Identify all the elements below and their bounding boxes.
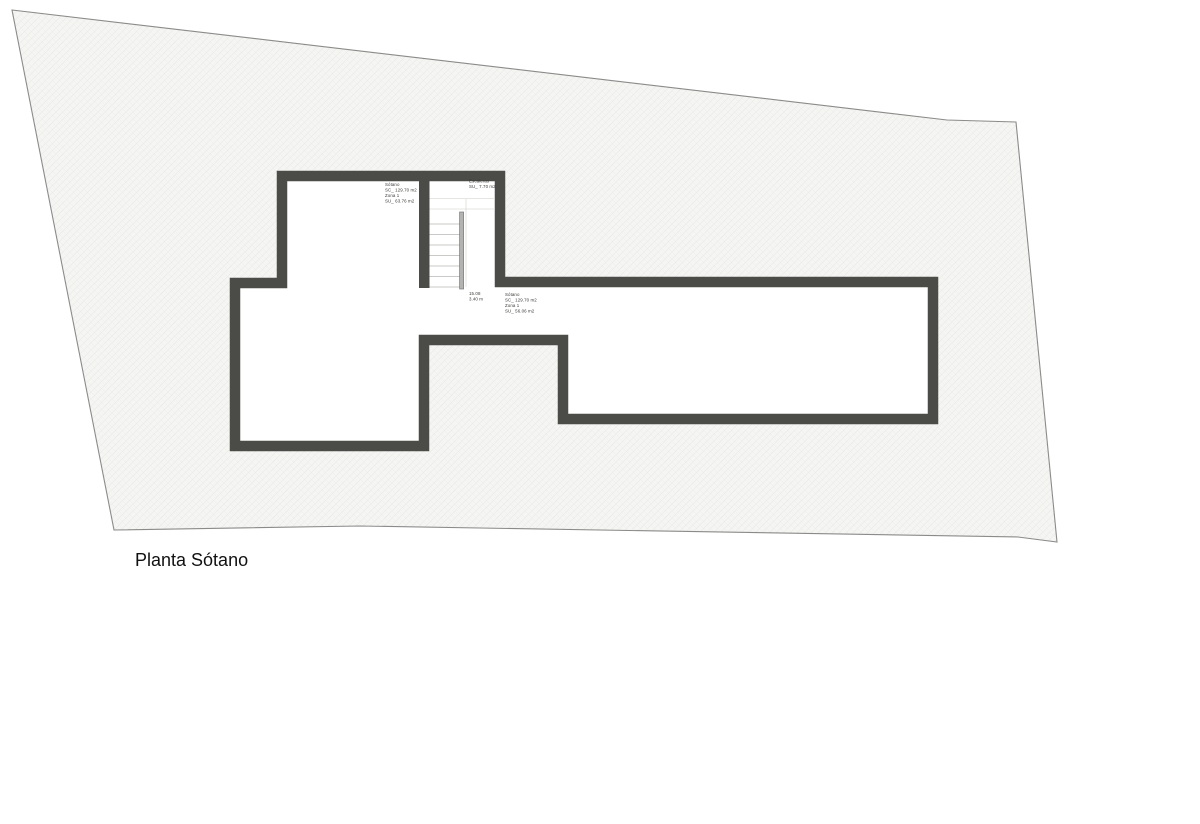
room-label-line: Sótano (385, 182, 400, 187)
room-label-line: SC_ 129.70 m2 (385, 188, 417, 193)
room-label-line: Sótano (505, 292, 520, 297)
dimension-line: 15.08 (469, 291, 481, 296)
stair-rail (460, 212, 464, 289)
room-label-line: Zona 1 (505, 303, 520, 308)
room-label-line: Zona 1 (385, 193, 400, 198)
room-label-line: SC_ 129.70 m2 (505, 298, 537, 303)
room-label-line: SU_ 56.06 m2 (505, 309, 535, 314)
stair-divider-wall (419, 171, 430, 288)
site-boundary (12, 10, 1057, 542)
floor-plan-canvas: Sótano SC_ 129.70 m2 Zona 1 SU_ 63.76 m2… (0, 0, 1200, 824)
room-label-line: SU_ 7.70 m2 (469, 184, 496, 189)
plan-title: Planta Sótano (135, 550, 248, 570)
room-label-line: Escaleras (469, 179, 490, 184)
room-label-line: SU_ 63.76 m2 (385, 199, 415, 204)
dimension-line: 3.40 m (469, 297, 483, 302)
